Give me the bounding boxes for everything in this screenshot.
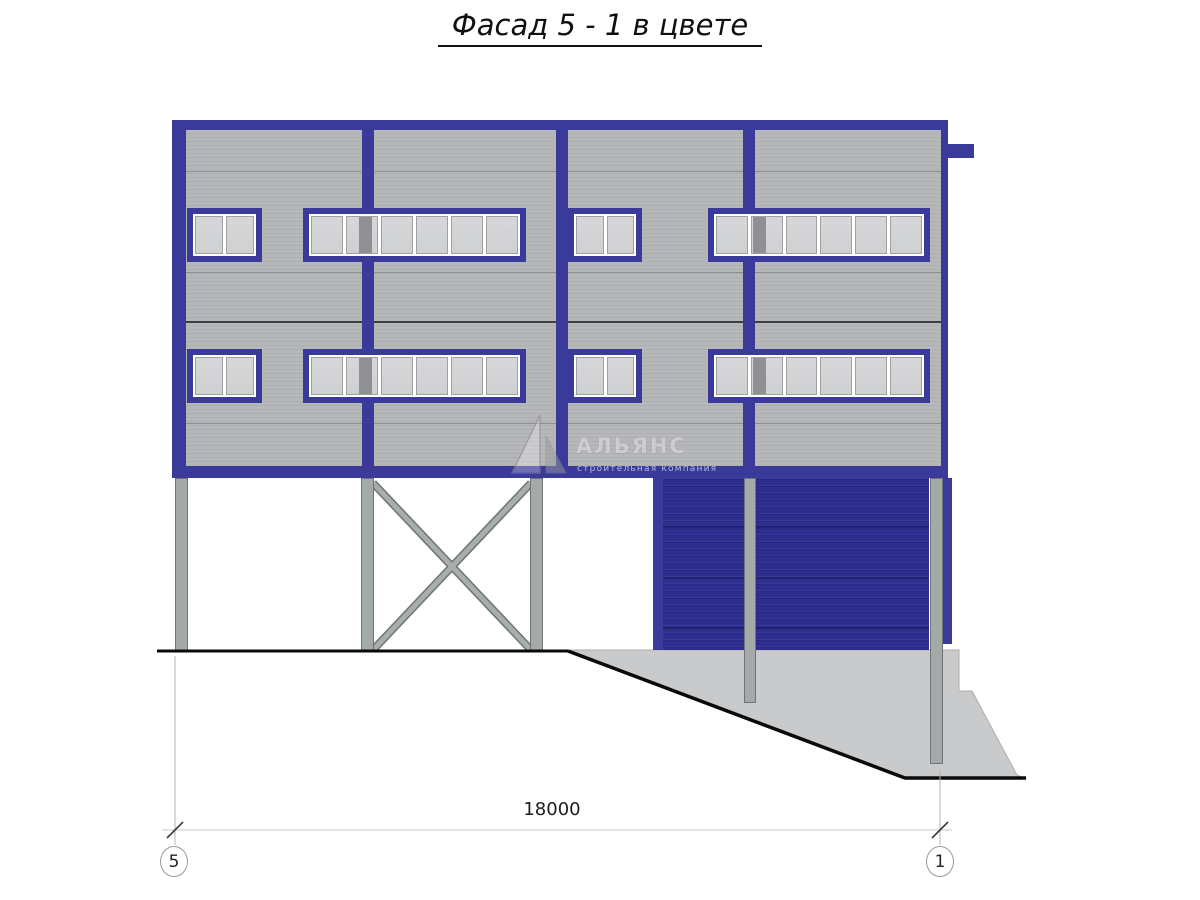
window-pane	[751, 357, 783, 395]
door-section-joint	[663, 526, 744, 528]
window-pane	[576, 216, 604, 254]
window-pane	[820, 216, 852, 254]
window-pane	[786, 357, 818, 395]
facade-mullion	[362, 130, 374, 466]
steel-pile	[175, 478, 188, 652]
window-ribbon-lower-right	[708, 349, 930, 403]
dimension-value: 18000	[497, 799, 607, 820]
door-section-joint	[756, 577, 929, 579]
door-section-joint	[756, 526, 929, 528]
window-pane	[890, 357, 922, 395]
window-pane	[890, 216, 922, 254]
facade-frame	[172, 120, 948, 478]
window-ribbon-lower-left	[303, 349, 526, 403]
facade-mullion	[743, 130, 755, 466]
x-bracing	[373, 483, 531, 650]
steel-pile	[361, 478, 374, 652]
window-pane	[195, 357, 223, 395]
window-pane	[416, 216, 448, 254]
window-pane	[451, 357, 483, 395]
window-pane	[716, 357, 748, 395]
window-pane	[311, 216, 343, 254]
window-pane	[416, 357, 448, 395]
open-sash	[359, 217, 372, 253]
cladding-panels	[186, 130, 941, 466]
window-small-upper-left	[187, 208, 262, 262]
door-frame-strip-left	[653, 478, 663, 650]
drawing-canvas: Фасад 5 - 1 в цвете	[0, 0, 1200, 900]
dimension-tick	[932, 822, 948, 838]
watermark-company-name: АЛЬЯНС	[576, 434, 687, 458]
garage-door-right	[756, 478, 929, 650]
roof-gutter-stub	[948, 144, 974, 158]
window-pane	[226, 216, 254, 254]
window-pane	[381, 357, 413, 395]
window-pane	[381, 216, 413, 254]
window-pane	[346, 357, 378, 395]
window-pane	[607, 357, 635, 395]
garage-door-left	[663, 478, 744, 650]
concrete-ramp	[568, 650, 1026, 779]
window-pane	[195, 216, 223, 254]
window-pane	[226, 357, 254, 395]
window-pane	[346, 216, 378, 254]
door-section-joint	[756, 627, 929, 629]
window-pane	[786, 216, 818, 254]
window-ribbon-upper-right	[708, 208, 930, 262]
window-pane	[486, 216, 518, 254]
window-pane	[311, 357, 343, 395]
door-section-joint	[663, 627, 744, 629]
window-pane	[820, 357, 852, 395]
window-pane	[855, 216, 887, 254]
window-pane	[451, 216, 483, 254]
door-frame-strip-right	[943, 478, 952, 644]
window-pane	[576, 357, 604, 395]
watermark-company-subtitle: строительная компания	[577, 464, 717, 474]
title-row: Фасад 5 - 1 в цвете	[0, 8, 1200, 47]
ground-slope-line	[568, 651, 1026, 778]
window-small-lower-left	[187, 349, 262, 403]
window-pane	[716, 216, 748, 254]
page-title: Фасад 5 - 1 в цвете	[438, 8, 762, 47]
open-sash	[359, 358, 372, 394]
steel-pile	[530, 478, 543, 652]
window-small-upper-right	[568, 208, 642, 262]
door-section-joint	[663, 577, 744, 579]
window-small-lower-right	[568, 349, 642, 403]
steel-pile	[930, 478, 943, 764]
open-sash	[753, 217, 766, 253]
window-ribbon-upper-left	[303, 208, 526, 262]
steel-pile	[744, 478, 756, 703]
window-pane	[855, 357, 887, 395]
dimension-tick	[167, 822, 183, 838]
axis-bubble-5: 5	[160, 846, 188, 877]
facade-mullion	[556, 130, 568, 466]
window-pane	[607, 216, 635, 254]
open-sash	[753, 358, 766, 394]
axis-bubble-1: 1	[926, 846, 954, 877]
window-pane	[486, 357, 518, 395]
window-pane	[751, 216, 783, 254]
